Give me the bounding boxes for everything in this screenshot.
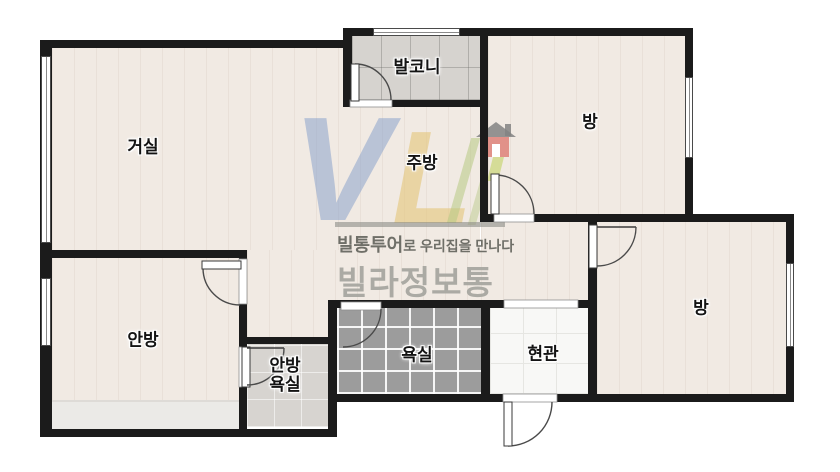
balcony-door-leaf xyxy=(351,64,359,101)
bedroom-top-right-door-leaf xyxy=(491,174,499,214)
master-bathroom-door-leaf xyxy=(242,347,250,387)
bedroom-bottom-right-door-leaf xyxy=(589,225,597,268)
front-door-leaf xyxy=(504,402,512,446)
label-bedroom-top-right: 방 xyxy=(582,108,598,133)
label-bedroom-bottom-right: 방 xyxy=(693,294,709,319)
master-bedroom-door-arc xyxy=(203,268,240,305)
bedroom-top-right-door-arc xyxy=(495,175,534,214)
master-bedroom-window xyxy=(41,278,51,346)
entrance-inner-threshold xyxy=(504,300,578,308)
floor-plan: V L 빌통투어로 우리집을 만나다 빌라정보통 xyxy=(0,0,840,472)
label-master-bathroom: 안방 욕실 xyxy=(269,356,300,394)
label-bathroom: 욕실 xyxy=(401,341,432,366)
bathroom-door-arc xyxy=(343,309,381,347)
living-room-window xyxy=(41,56,51,243)
label-master-bedroom: 안방 xyxy=(127,326,158,351)
bedroom-bottom-right-window xyxy=(786,263,794,347)
label-entrance: 현관 xyxy=(527,340,558,365)
balcony-door-arc xyxy=(355,64,391,100)
bedroom-top-right-window xyxy=(685,77,693,158)
label-kitchen: 주방 xyxy=(406,149,437,174)
balcony-window xyxy=(373,28,460,36)
label-master-bathroom-line2: 욕실 xyxy=(269,375,300,394)
label-master-bathroom-line1: 안방 xyxy=(269,356,300,375)
front-door-threshold xyxy=(503,394,557,402)
bedroom-top-right-door-threshold xyxy=(494,214,534,222)
master-bedroom-door-leaf xyxy=(202,261,241,269)
label-living-room: 거실 xyxy=(127,133,158,158)
label-balcony: 발코니 xyxy=(394,53,441,78)
bathroom-door-threshold xyxy=(341,302,381,310)
front-door-arc xyxy=(508,402,552,446)
bedroom-bottom-right-door-arc xyxy=(597,227,636,266)
